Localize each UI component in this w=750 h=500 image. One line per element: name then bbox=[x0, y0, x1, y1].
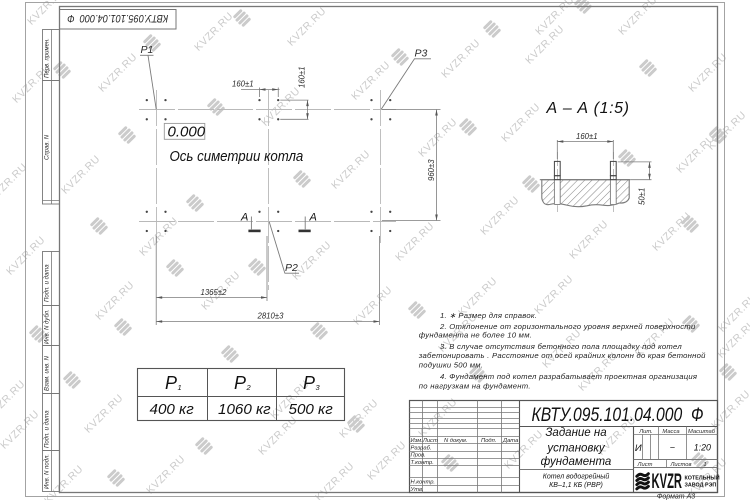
svg-text:Р3: Р3 bbox=[415, 48, 428, 60]
svg-text:Масса: Масса bbox=[662, 429, 680, 435]
svg-text:фундамента не более 10 мм.: фундамента не более 10 мм. bbox=[419, 331, 532, 340]
svg-text:Котел водогрейный: Котел водогрейный bbox=[543, 472, 610, 480]
svg-text:Изм.Лист: Изм.Лист bbox=[411, 438, 438, 444]
svg-text:Р: Р bbox=[234, 373, 246, 393]
svg-text:КВТУ.095.101.04.000 Ф: КВТУ.095.101.04.000 Ф bbox=[532, 405, 704, 426]
svg-text:КВ–1,1 КБ (РВР): КВ–1,1 КБ (РВР) bbox=[549, 482, 603, 489]
svg-text:Утв.: Утв. bbox=[410, 487, 424, 493]
svg-text:–: – bbox=[669, 443, 675, 452]
svg-text:1. ∗ Размер для справок.: 1. ∗ Размер для справок. bbox=[440, 311, 537, 320]
svg-text:960±3: 960±3 bbox=[427, 159, 436, 181]
svg-text:1365±2: 1365±2 bbox=[201, 288, 228, 297]
svg-text:Лист: Лист bbox=[637, 462, 653, 468]
svg-text:400 кг: 400 кг bbox=[150, 401, 195, 418]
svg-text:ЗАВОД РЭП: ЗАВОД РЭП bbox=[685, 482, 717, 488]
svg-text:1: 1 bbox=[703, 462, 706, 468]
svg-text:Инв. N подл.: Инв. N подл. bbox=[45, 454, 51, 489]
svg-text:Подп.: Подп. bbox=[481, 438, 496, 444]
svg-text:Инв. N дубл.: Инв. N дубл. bbox=[45, 309, 51, 344]
svg-text:160±1: 160±1 bbox=[576, 132, 598, 141]
svg-text:1060 кг: 1060 кг bbox=[218, 401, 271, 418]
svg-text:N докум.: N докум. bbox=[444, 438, 467, 444]
svg-text:160±1: 160±1 bbox=[232, 80, 254, 89]
svg-text:Пров.: Пров. bbox=[411, 453, 426, 459]
svg-text:Перв. примен.: Перв. примен. bbox=[45, 38, 51, 78]
svg-text:Задание на: Задание на bbox=[545, 427, 606, 439]
svg-text:50±1: 50±1 bbox=[638, 188, 647, 205]
svg-text:500 кг: 500 кг bbox=[289, 401, 334, 418]
svg-text:Р: Р bbox=[303, 373, 315, 393]
svg-text:установку: установку bbox=[546, 443, 606, 455]
svg-text:забетонировать . Расстояние: забетонировать . Расстояние от осей край… bbox=[418, 351, 706, 360]
svg-text:1: 1 bbox=[178, 383, 182, 392]
svg-text:А: А bbox=[240, 212, 248, 224]
svg-text:Ось симетрии котла: Ось симетрии котла bbox=[170, 149, 304, 165]
svg-text:3. В случае отсутствия бет: 3. В случае отсутствия бетонного пола пл… bbox=[440, 342, 682, 351]
svg-text:Н.контр.: Н.контр. bbox=[411, 479, 436, 485]
svg-text:Дата: Дата bbox=[502, 438, 519, 444]
svg-text:Масштаб: Масштаб bbox=[688, 429, 716, 435]
svg-text:Р2: Р2 bbox=[285, 262, 298, 274]
svg-text:Р1: Р1 bbox=[141, 44, 154, 56]
svg-text:А – А (1:5): А – А (1:5) bbox=[546, 100, 630, 117]
svg-text:Подп. и дата: Подп. и дата bbox=[45, 264, 51, 302]
svg-text:Разраб.: Разраб. bbox=[411, 445, 432, 451]
svg-text:подушки 500 мм.: подушки 500 мм. bbox=[419, 360, 483, 369]
svg-text:0.000: 0.000 bbox=[168, 124, 206, 141]
svg-text:1:20: 1:20 bbox=[694, 443, 711, 453]
svg-text:Т.контр.: Т.контр. bbox=[411, 460, 434, 466]
svg-text:Справ. N: Справ. N bbox=[45, 134, 51, 160]
svg-text:Подп. и дата: Подп. и дата bbox=[45, 410, 51, 448]
svg-text:И: И bbox=[635, 443, 642, 454]
svg-text:А: А bbox=[309, 212, 317, 224]
svg-text:фундамента: фундамента bbox=[541, 456, 612, 468]
svg-text:160±1: 160±1 bbox=[298, 66, 307, 88]
svg-text:Листов: Листов bbox=[669, 462, 691, 468]
svg-text:Лит.: Лит. bbox=[638, 429, 653, 435]
svg-text:Взам. инв. N: Взам. инв. N bbox=[45, 355, 51, 391]
svg-text:Формат А3: Формат А3 bbox=[657, 494, 695, 500]
svg-text:по нагрузкам на фундамент.: по нагрузкам на фундамент. bbox=[419, 381, 531, 390]
svg-text:4. Фундамент под котел раз: 4. Фундамент под котел разрабатывает про… bbox=[440, 372, 697, 381]
svg-text:КВТУ.095.101.04.000 Ф: КВТУ.095.101.04.000 Ф bbox=[67, 12, 168, 24]
svg-text:KVZR: KVZR bbox=[652, 470, 683, 493]
svg-text:КОТЕЛЬНЫЙ: КОТЕЛЬНЫЙ bbox=[685, 473, 720, 481]
svg-text:2810±3: 2810±3 bbox=[257, 312, 285, 321]
svg-text:2: 2 bbox=[246, 383, 252, 392]
svg-text:Р: Р bbox=[165, 373, 177, 393]
